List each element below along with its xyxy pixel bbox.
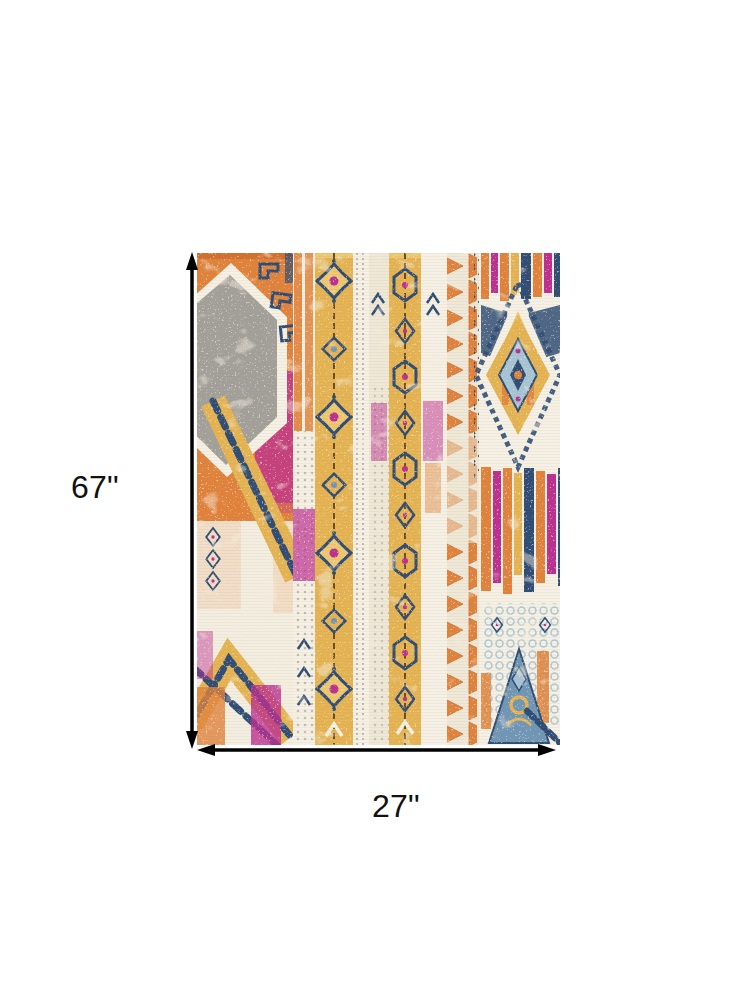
- rug-artwork: [197, 253, 560, 745]
- rug-image: [197, 253, 560, 745]
- rug-wear-texture: [197, 253, 560, 745]
- width-dimension-label: 27'': [351, 790, 441, 822]
- height-dimension-label: 67'': [50, 471, 140, 503]
- double-headed-horizontal-arrow-icon: [197, 744, 556, 756]
- product-dimension-diagram: 67'' 27'': [0, 0, 748, 1000]
